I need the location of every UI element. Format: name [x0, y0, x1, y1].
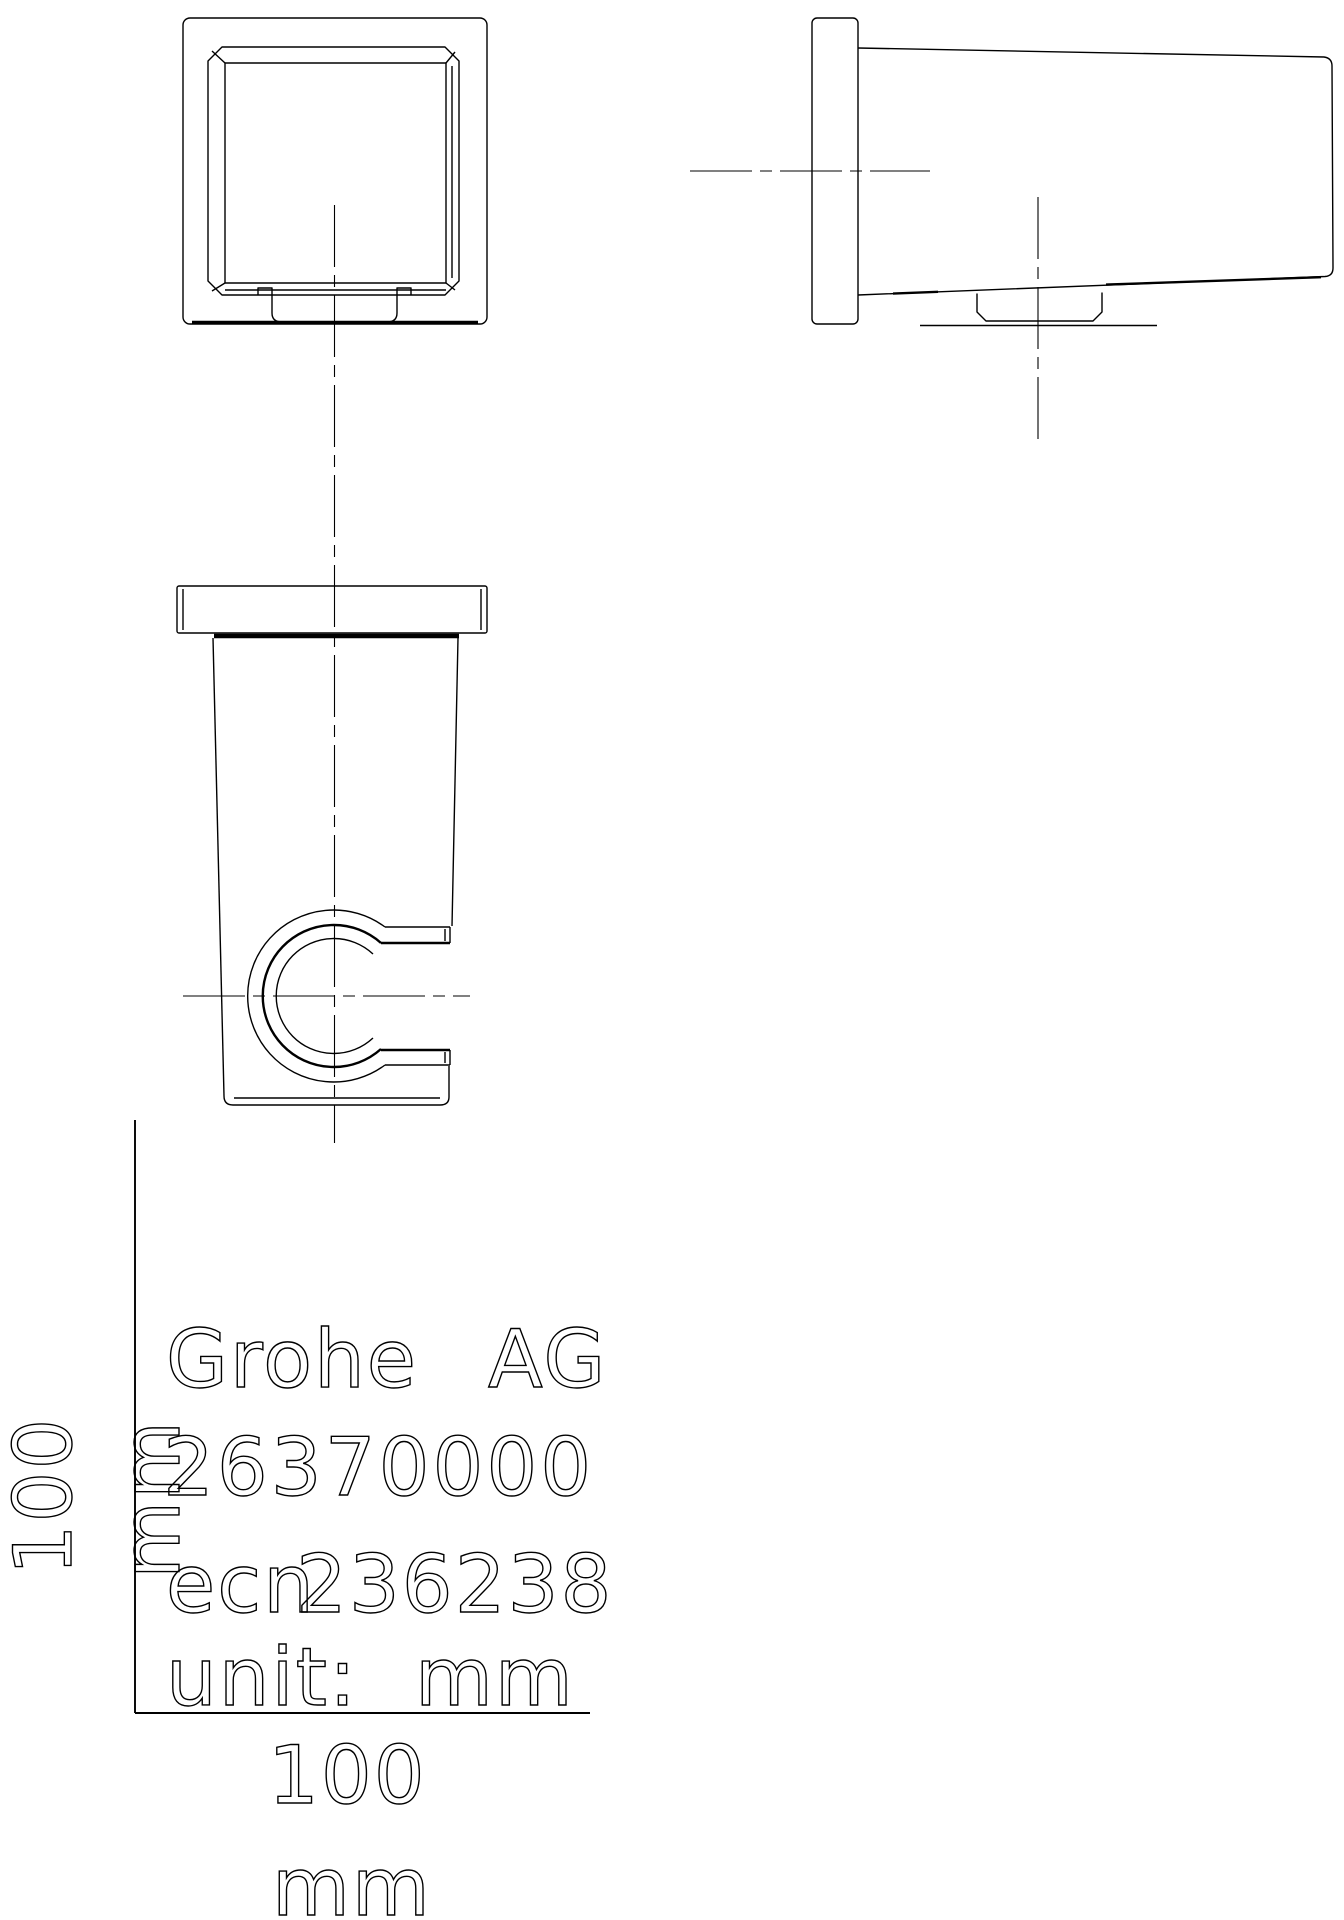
body-underside-shadow-right	[1106, 277, 1321, 284]
clip-tab-right	[397, 288, 411, 295]
body-bottom-outline	[224, 1066, 449, 1105]
dim-width-unit: mm	[272, 1848, 432, 1920]
bevel-diagonal-tr	[446, 52, 455, 63]
bevel-diagonal-tl	[212, 51, 225, 63]
dim-height-value: 100	[4, 1417, 84, 1576]
body-side-right	[452, 638, 458, 926]
ecn-number: 236238	[296, 1545, 613, 1625]
manufacturer-name-word2: AG	[488, 1320, 607, 1400]
body-side-left	[213, 638, 224, 1096]
dim-width-value: 100	[268, 1736, 427, 1816]
unit-value: mm	[415, 1638, 575, 1718]
bottom-view	[177, 586, 487, 1105]
clip-tab-left	[258, 288, 272, 295]
unit-label: unit:	[166, 1638, 358, 1718]
plate-bar	[177, 586, 487, 633]
manufacturer-name-word1: Grohe	[166, 1320, 418, 1400]
escutcheon-frame-outer	[208, 47, 459, 295]
product-number: 26370000	[163, 1428, 594, 1508]
escutcheon-frame-inner	[225, 63, 446, 283]
body-underside-shadow-left	[893, 292, 938, 294]
drawing-canvas: Grohe AG 26370000 ecn 236238 unit: mm 10…	[0, 0, 1344, 1920]
cradle-profile	[977, 293, 1102, 322]
front-view	[183, 18, 487, 1143]
side-view	[690, 18, 1333, 443]
dim-height-unit: mm	[112, 1419, 192, 1579]
